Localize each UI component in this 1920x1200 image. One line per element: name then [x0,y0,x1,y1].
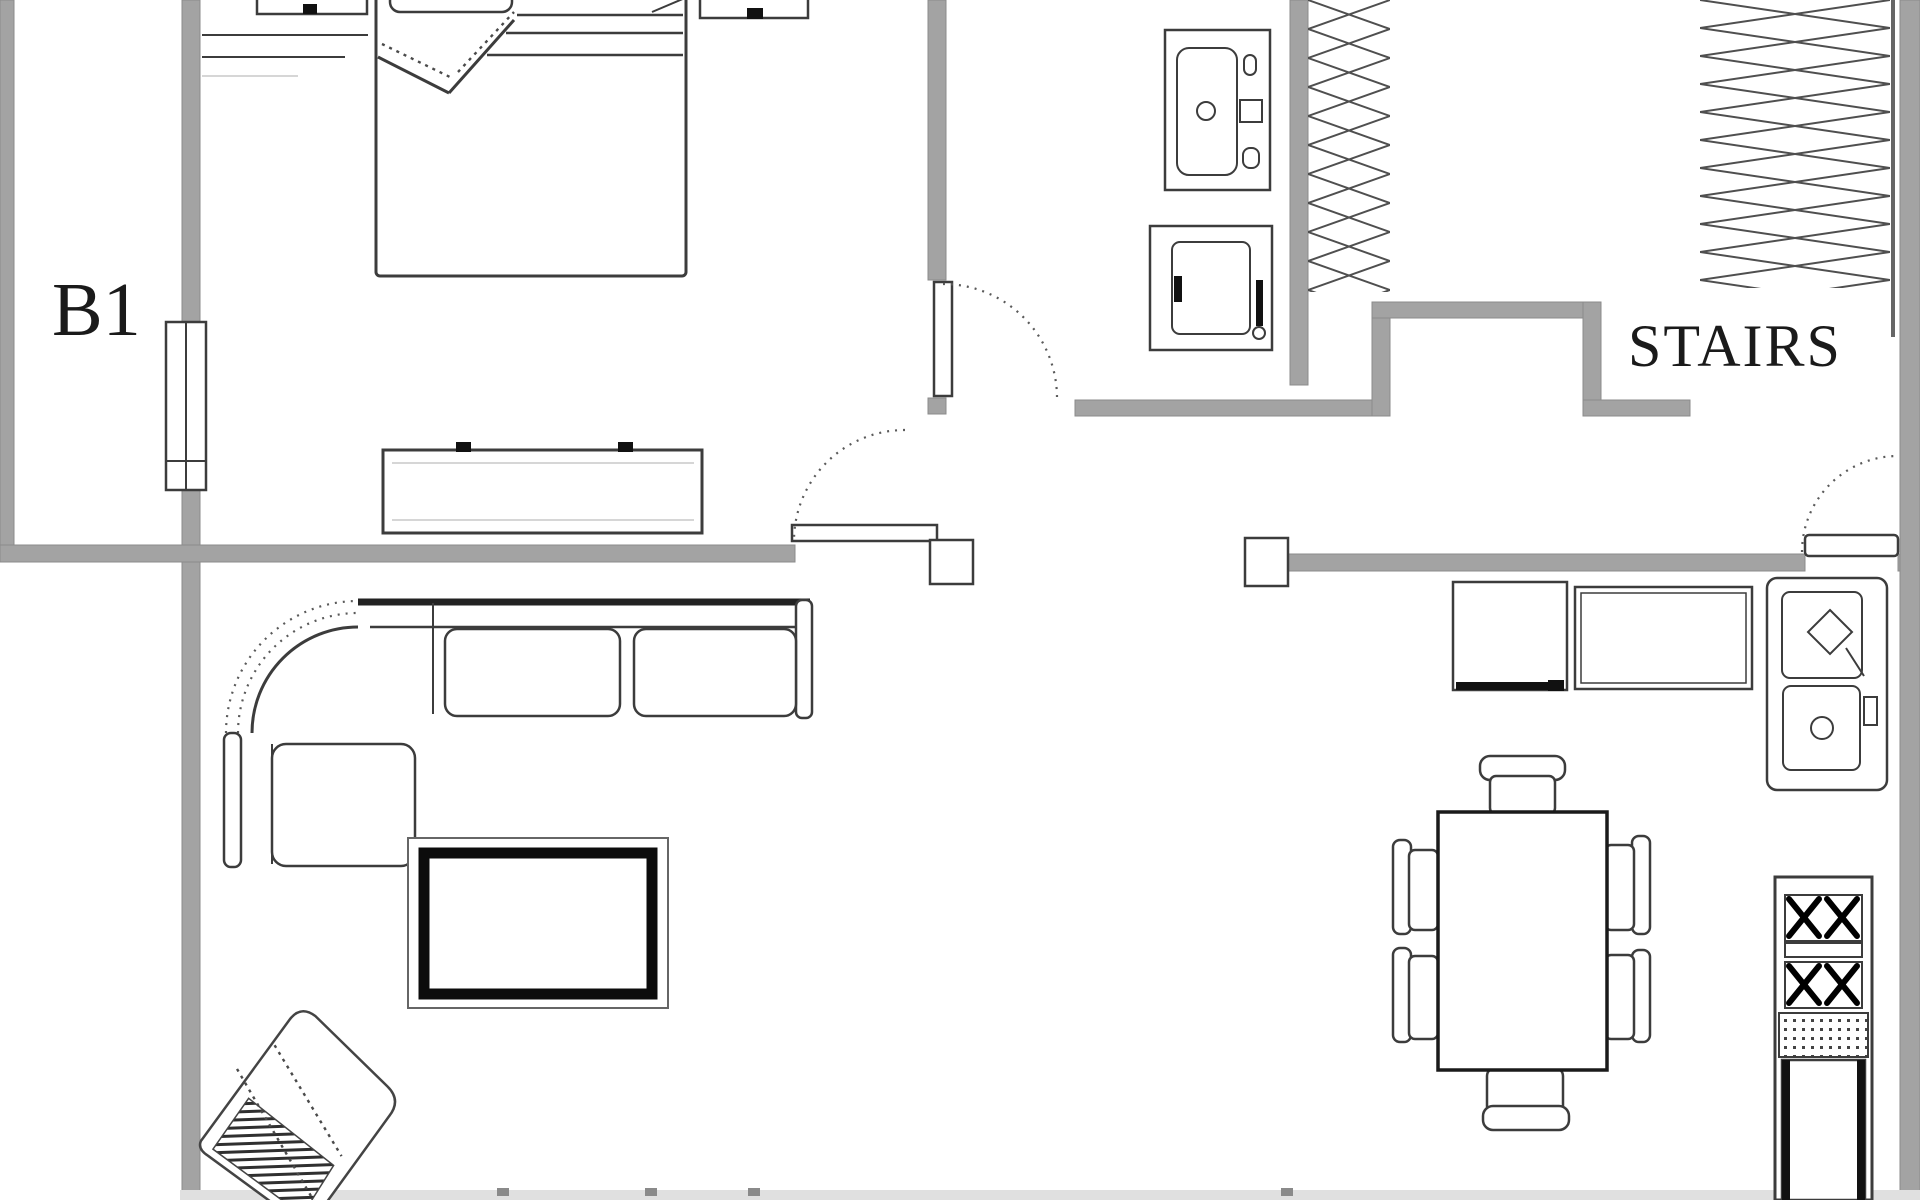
pillow-icon [390,0,512,12]
sink-vanity [1165,30,1270,190]
bedroom-door [934,282,1057,398]
stove-control-strip [1779,1013,1868,1057]
nightstand-knob-icon [747,8,763,19]
wall-left-outer [0,0,14,558]
closet-hangers-right [1700,0,1890,288]
sofa-cushion [445,629,620,716]
door-leaf [792,525,937,541]
stove [1775,877,1872,1200]
sectional-sofa [224,600,812,867]
washing-machine [1150,226,1272,350]
handle-icon [1256,280,1263,326]
wall-stair-notch-left [1372,306,1390,416]
nightstand-right [700,0,808,19]
kitchen-entry-jamb [1245,538,1288,586]
area-label: B1 [52,268,141,352]
floor-plan-page: B1 STAIRS [0,0,1920,1200]
radiator-lines [202,35,368,76]
door-swing-arc [943,284,1057,398]
wall-bedroom-right-stub [928,398,946,414]
nightstand-knob-icon [303,4,317,14]
stairs-label: STAIRS [1628,313,1842,379]
wall-stair-notch-right [1583,302,1601,416]
wall-right-outer [1900,0,1920,1200]
wall-closet-divider [1290,0,1308,385]
closet-hangers-left [1308,0,1390,292]
door-leaf [934,282,952,396]
sofa-armrest-left [224,733,241,867]
wall-hall-lower-b [1583,400,1690,416]
wall-bedroom-living-divider [0,545,795,562]
kitchen [1393,578,1887,1200]
dresser-knob-icon [618,442,633,452]
nightstand-left [257,0,367,14]
sofa-corner-seam [252,627,358,733]
coffee-table [408,838,668,1008]
sofa-cushion [634,629,796,716]
bedroom [202,0,808,533]
counter-unit [1575,587,1752,689]
wall-living-left [182,490,200,1200]
sofa-corner-arc [226,601,358,733]
double-bed [376,0,686,276]
living-room-door [792,430,973,584]
wall-hall-lower-a [1075,400,1390,416]
wall-kitchen-top [1288,554,1805,571]
dining-table [1438,812,1607,1070]
door-leaf [1805,535,1898,556]
wall-bedroom-left-upper [182,0,200,324]
wall-stair-notch-top [1372,302,1600,318]
vestibule-fixtures [1150,30,1272,350]
sofa-armrest-right [796,600,812,718]
kitchen-sink [1767,578,1887,790]
wall-bottom-faint [180,1190,1920,1200]
dresser-knob-icon [456,442,471,452]
sofa-corner-arc [238,613,358,733]
window-left [166,322,206,490]
dining-set [1393,756,1650,1130]
floor-plan-canvas: B1 STAIRS [0,0,1920,1200]
dresser [383,442,702,533]
wall-bedroom-right [928,0,946,280]
sofa-chaise-cushion [272,744,415,866]
door-jamb [930,540,973,584]
base-cabinet [1453,582,1567,691]
speaker-armchair [173,998,421,1200]
